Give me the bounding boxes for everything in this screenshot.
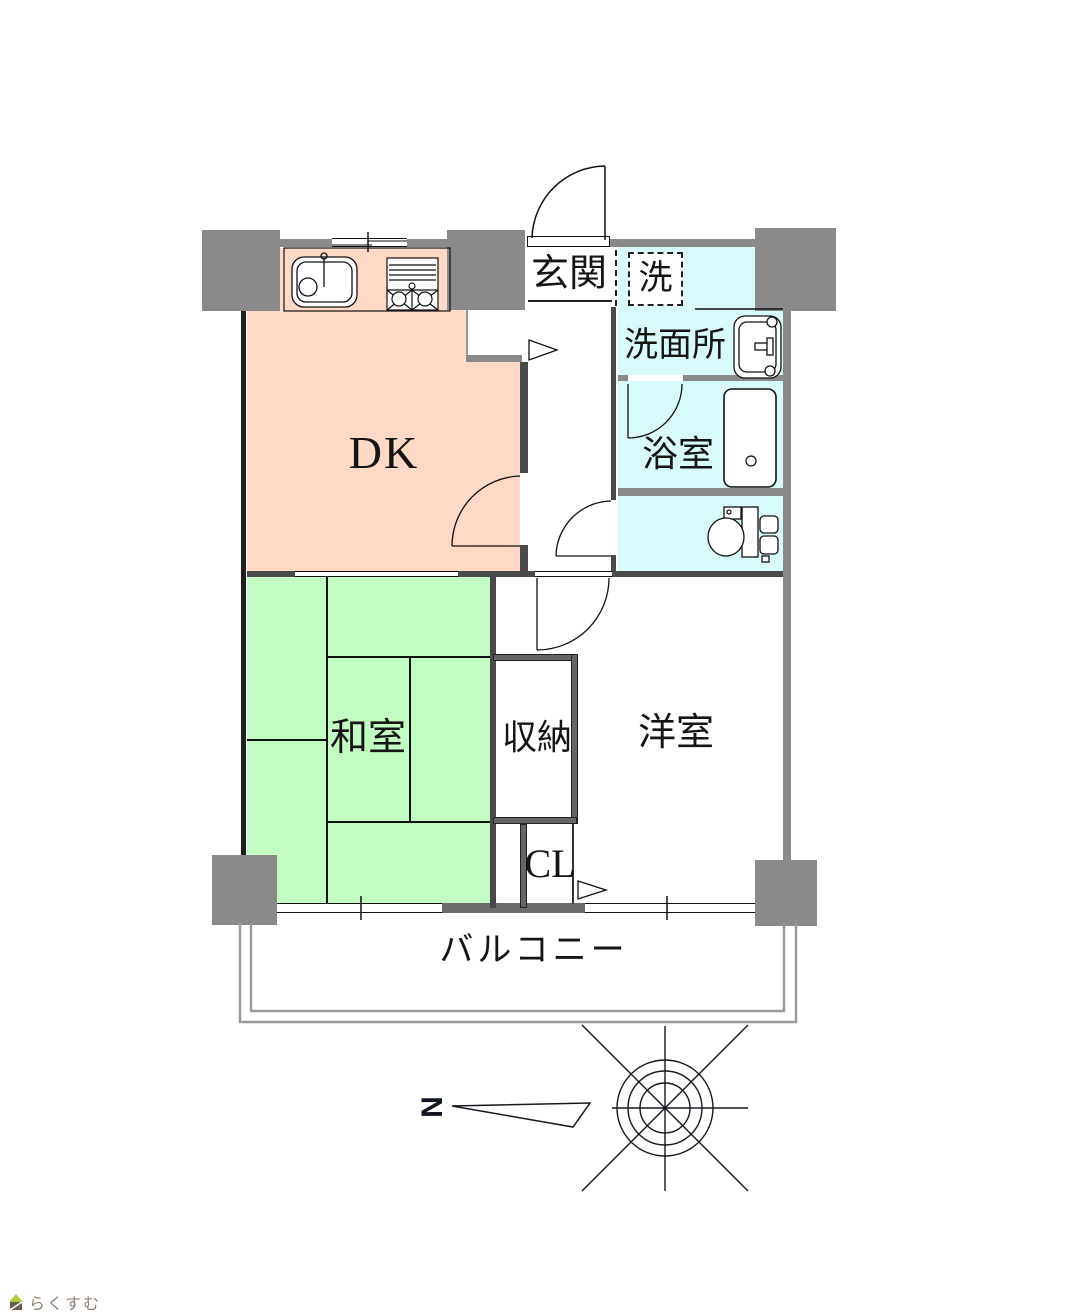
genkan-label: 玄関 — [531, 255, 607, 293]
balcony-label: バルコニー — [439, 934, 628, 968]
closet-door-arrow-icon — [578, 881, 606, 899]
house-icon — [8, 1293, 24, 1311]
toilet-door-icon — [556, 501, 611, 556]
floorplan-canvas: 洗 DK 玄関 洗面所 浴室 和室 収納 洋室 CL バルコニー N らくすむ — [0, 0, 1066, 1312]
bathtub-icon — [724, 389, 776, 487]
entrance-door-icon — [532, 166, 605, 240]
north-label: N — [416, 1096, 450, 1118]
compass-rose-icon — [582, 1025, 748, 1191]
washroom-entry-dashed-line — [616, 250, 783, 309]
watermark-text: らくすむ — [29, 1290, 101, 1312]
toilet-icon — [708, 507, 778, 562]
washbasin-icon — [734, 316, 781, 378]
watermark: らくすむ — [8, 1290, 101, 1312]
japanese-room-label: 和室 — [330, 719, 406, 757]
gas-stove-icon — [387, 258, 438, 310]
washroom-label: 洗面所 — [624, 329, 726, 363]
window-tick — [332, 232, 667, 920]
sliding-door-arrow-icon — [529, 340, 557, 360]
dk-door-icon — [452, 476, 520, 546]
north-arrow-icon — [452, 1103, 590, 1127]
kitchen-sink-icon — [292, 253, 357, 307]
bathroom-door-icon — [628, 384, 682, 438]
western-room-label: 洋室 — [638, 714, 714, 752]
plan-vector-overlay — [0, 0, 1066, 1312]
dk-label: DK — [349, 430, 419, 476]
western-room-door-icon — [537, 578, 609, 650]
bathroom-label: 浴室 — [642, 436, 714, 472]
storage-label: 収納 — [502, 721, 572, 756]
closet-label: CL — [524, 844, 575, 884]
